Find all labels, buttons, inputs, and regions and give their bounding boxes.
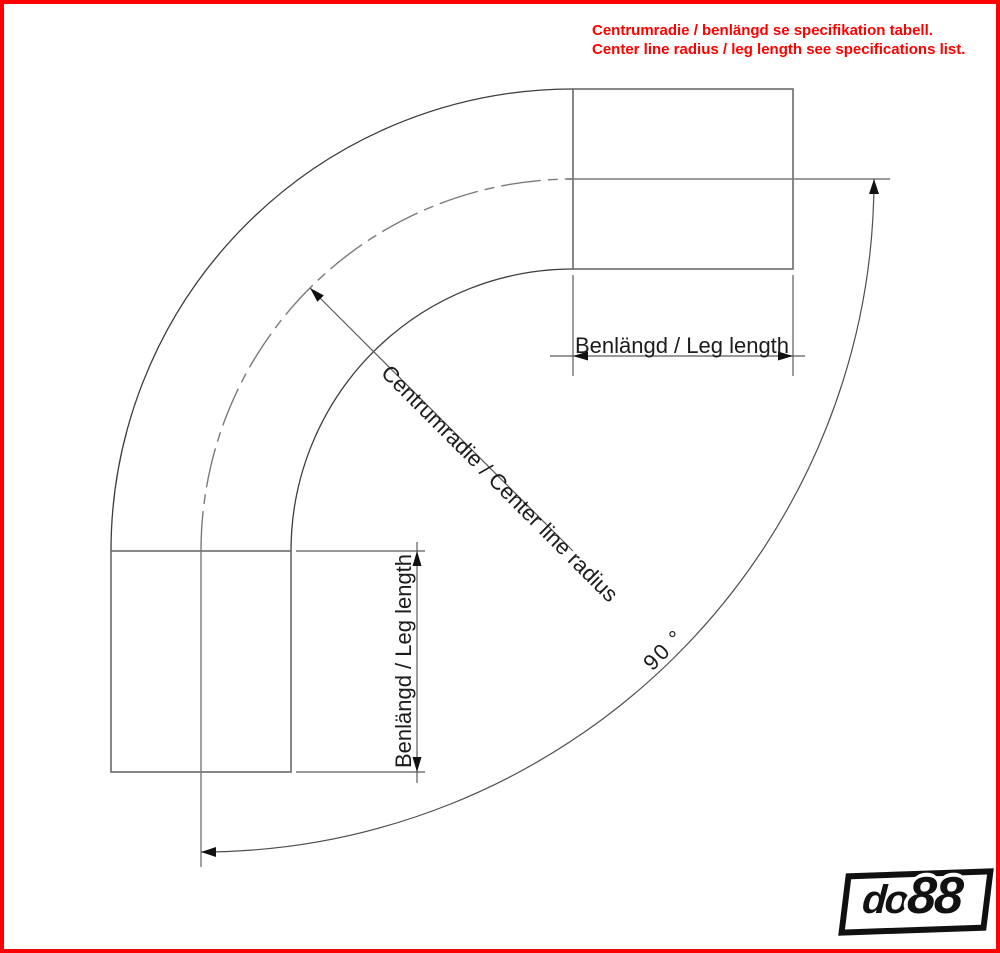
leg-length-label-left: Benlängd / Leg length bbox=[391, 541, 417, 781]
specification-note-line1: Centrumradie / benlängd se specifikation… bbox=[592, 21, 965, 40]
specification-note-line2: Center line radius / leg length see spec… bbox=[592, 40, 965, 59]
dim-top-extension-lines bbox=[573, 275, 793, 376]
angle-arrow-bottom-icon bbox=[201, 847, 216, 857]
do88-logo-text: do88 bbox=[832, 866, 992, 926]
leg-length-label-top: Benlängd / Leg length bbox=[570, 333, 794, 359]
angle-arrow-top-icon bbox=[869, 179, 879, 194]
drawing-canvas: Centrumradie / benlängd se specifikation… bbox=[0, 0, 1000, 953]
do88-logo: do88 bbox=[830, 864, 994, 940]
do88-logo-88: 88 bbox=[905, 867, 963, 925]
do88-logo-do: do bbox=[861, 878, 909, 922]
specification-note: Centrumradie / benlängd se specifikation… bbox=[592, 21, 965, 59]
